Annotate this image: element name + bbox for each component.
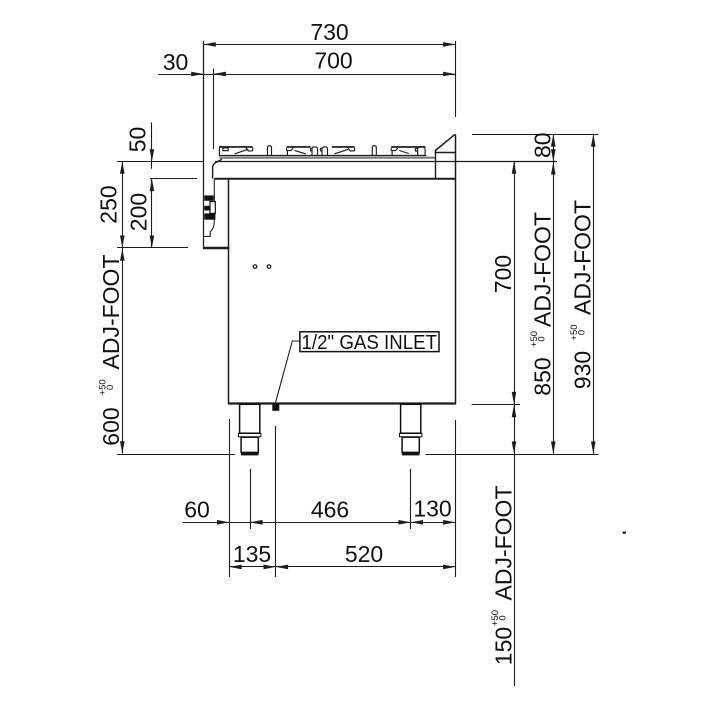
svg-text:80: 80 xyxy=(529,132,555,158)
svg-text:150: 150 xyxy=(491,627,517,665)
svg-text:60: 60 xyxy=(184,497,210,523)
svg-text:466: 466 xyxy=(311,497,349,523)
svg-text:0: 0 xyxy=(576,330,587,335)
svg-text:930: 930 xyxy=(569,351,595,389)
svg-text:50: 50 xyxy=(125,127,151,153)
svg-text:700: 700 xyxy=(490,255,516,293)
svg-text:ADJ-FOOT: ADJ-FOOT xyxy=(569,200,595,315)
svg-text:1/2" GAS INLET: 1/2" GAS INLET xyxy=(302,331,438,354)
svg-text:0: 0 xyxy=(498,615,509,620)
svg-text:520: 520 xyxy=(345,541,383,567)
svg-text:600: 600 xyxy=(98,407,124,445)
svg-text:0: 0 xyxy=(105,385,116,390)
svg-text:135: 135 xyxy=(233,541,271,567)
svg-text:ADJ-FOOT: ADJ-FOOT xyxy=(98,255,124,370)
svg-text:730: 730 xyxy=(310,19,348,45)
svg-text:850: 850 xyxy=(529,357,555,395)
svg-text:0: 0 xyxy=(536,336,547,341)
svg-text:130: 130 xyxy=(413,496,451,522)
svg-text:30: 30 xyxy=(163,49,189,75)
svg-text:700: 700 xyxy=(314,47,352,73)
svg-text:250: 250 xyxy=(96,185,122,223)
svg-text:ADJ-FOOT: ADJ-FOOT xyxy=(529,212,555,327)
svg-text:ADJ-FOOT: ADJ-FOOT xyxy=(491,486,517,601)
svg-text:200: 200 xyxy=(126,193,152,231)
